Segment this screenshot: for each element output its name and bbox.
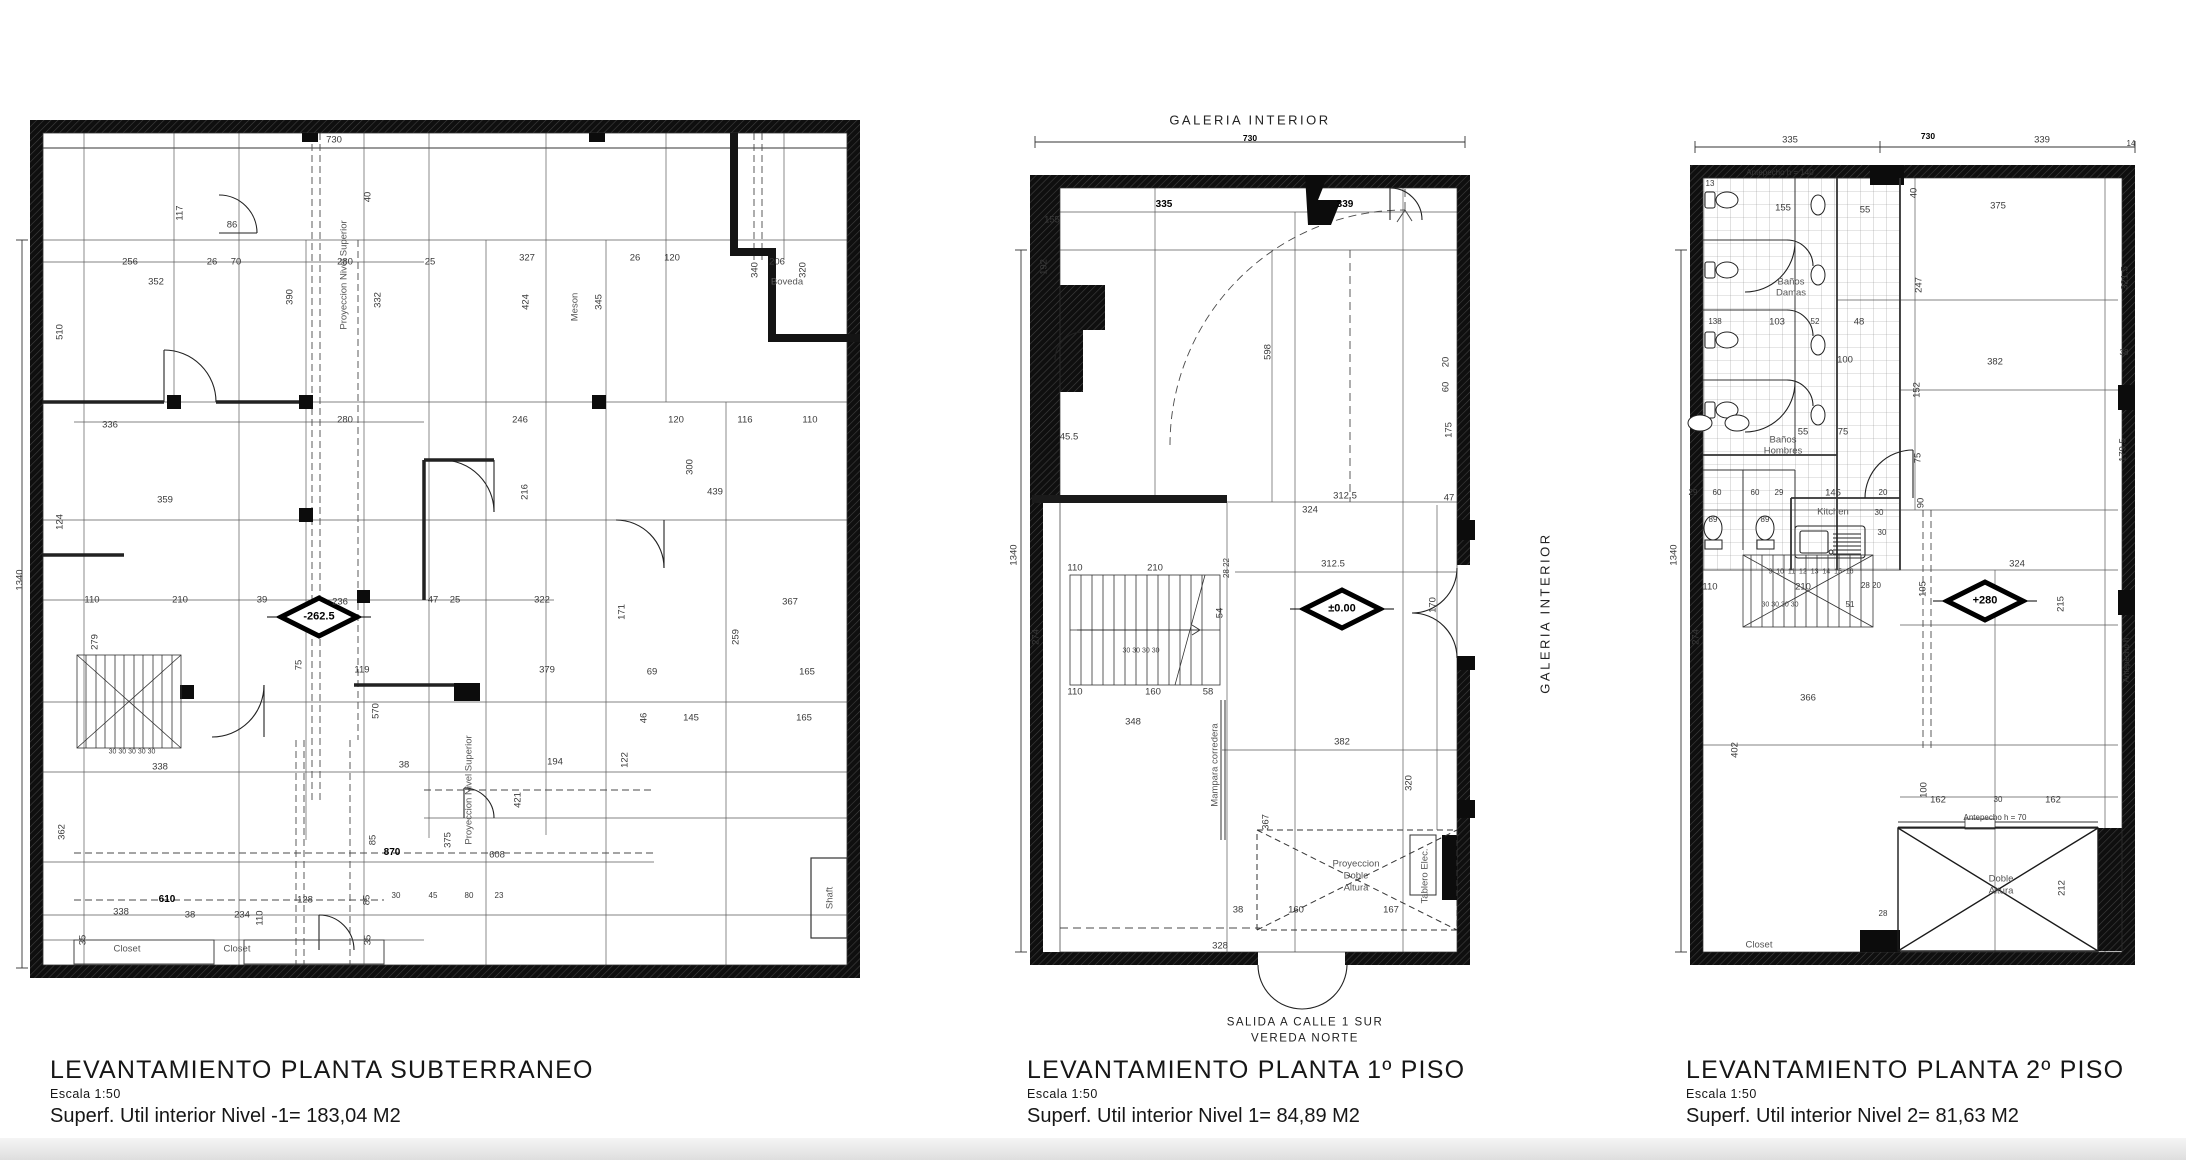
dim-label: 128: [297, 895, 313, 905]
dim-label: 246: [512, 415, 528, 425]
dim-label: 145: [1825, 488, 1841, 498]
dim-label: 324: [1302, 505, 1318, 515]
dim-label: 30 30 30 30: [1123, 648, 1160, 655]
dim-label: 26: [630, 253, 641, 263]
plan-subterraneo-labels: 73013401178625626702802532726120206352Bo…: [14, 100, 874, 1000]
dim-label: 256: [122, 257, 138, 267]
dim-label: 279: [90, 634, 100, 650]
dim-label: 60: [1441, 382, 1451, 393]
dim-label: 171: [617, 604, 627, 620]
room-label: Hombres: [1764, 446, 1803, 456]
dim-label: 28 20: [1861, 582, 1881, 590]
room-label: Mampara corredera: [1210, 723, 1220, 806]
dim-label: 439: [707, 487, 723, 497]
dim-label: 570: [371, 703, 381, 719]
dim-label: 120: [668, 415, 684, 425]
plan-scale-subterraneo: Escala 1:50: [50, 1087, 594, 1101]
dim-label: 322: [534, 595, 550, 605]
dim-label: 25: [450, 595, 461, 605]
dim-label: 274: [1031, 629, 1041, 645]
dim-label: 46: [639, 713, 649, 724]
dim-label: 335: [1156, 200, 1173, 210]
room-label: Closet: [224, 944, 251, 954]
dim-label: 236: [332, 597, 348, 607]
dim-label: SALIDA A CALLE 1 SUR: [1227, 1017, 1384, 1029]
level-marker-label: -262.5: [303, 612, 334, 623]
dim-label: 110: [255, 910, 265, 925]
dim-label: GALERIA INTERIOR: [1169, 114, 1330, 127]
dim-label: 52: [1811, 318, 1820, 326]
dim-label: 212: [2057, 880, 2067, 896]
dim-label: 320: [798, 262, 808, 278]
dim-label: 730: [326, 135, 342, 145]
dim-label: 20: [1441, 357, 1451, 368]
dim-label: Antepecho h = 70: [1964, 814, 2027, 822]
dim-label: 51: [1846, 601, 1855, 609]
dim-label: 336: [102, 420, 118, 430]
dim-label: 1340: [1669, 544, 1679, 565]
dim-label: 100: [1919, 782, 1929, 798]
dim-label: 300: [685, 459, 695, 475]
dim-label: 69: [647, 667, 658, 677]
dim-label: 382: [1987, 357, 2003, 367]
dim-label: 110: [1067, 563, 1082, 573]
dim-label: 421: [513, 792, 523, 808]
dim-label: 179.5: [2118, 438, 2128, 462]
dim-label: 25: [425, 257, 436, 267]
dim-label: 38: [399, 760, 410, 770]
dim-label: 155: [1775, 203, 1791, 213]
dim-label: 30: [1878, 529, 1887, 537]
dim-label: 45: [429, 892, 438, 900]
dim-label: 110: [1702, 582, 1717, 592]
dim-label: 345: [594, 294, 604, 310]
dim-label: 124: [55, 514, 65, 530]
dim-label: 152: [1912, 382, 1922, 398]
room-label: Closet: [114, 944, 141, 954]
dim-label: 247: [1914, 277, 1924, 293]
dim-label: 1340: [15, 569, 25, 590]
dim-label: 402: [1730, 742, 1740, 758]
dim-label: 348: [1125, 717, 1141, 727]
dim-label: 75: [1838, 427, 1849, 437]
dim-label: 30: [1994, 796, 2003, 804]
dim-label: 320: [1404, 775, 1414, 791]
plan-scale-segundo-piso: Escala 1:50: [1686, 1087, 2124, 1101]
dim-label: 321.5: [2120, 266, 2130, 290]
dim-label: 58: [1203, 687, 1214, 697]
plan-area-subterraneo: Superf. Util interior Nivel -1= 183,04 M…: [50, 1105, 594, 1128]
dim-label: 379: [539, 665, 555, 675]
dim-label: 145: [683, 713, 699, 723]
plan-title-primer-piso: LEVANTAMIENTO PLANTA 1º PISO: [1027, 1056, 1465, 1085]
dim-label: 175: [1444, 422, 1454, 438]
dim-label: 110: [1067, 687, 1082, 697]
dim-label: 312.5: [1321, 559, 1345, 569]
drawing-sheet: 73013401178625626702802532726120206352Bo…: [0, 0, 2186, 1160]
plan-area-primer-piso: Superf. Util interior Nivel 1= 84,89 M2: [1027, 1105, 1465, 1128]
dim-label: 338: [113, 907, 129, 917]
dim-label: 75: [294, 660, 304, 671]
room-label: Proyeccion Nivel Superior: [339, 220, 349, 329]
dim-label: 274: [1691, 629, 1701, 645]
dim-label: 45.5: [1060, 432, 1079, 442]
room-label: Doble: [1344, 871, 1369, 881]
dim-label: 110: [802, 415, 817, 425]
dim-label: 730: [1243, 134, 1257, 143]
dim-label: 598: [1263, 344, 1273, 360]
dim-label: 335: [1782, 135, 1798, 145]
dim-label: 30: [392, 892, 401, 900]
dim-label: 215: [2056, 596, 2066, 612]
dim-label: 70: [231, 257, 242, 267]
level-marker-label: +280: [1973, 596, 1998, 607]
dim-label: 117: [175, 205, 185, 220]
dim-label: 328: [1212, 941, 1228, 951]
dim-label: 608: [489, 850, 505, 860]
plan-segundo-piso: 33573033914Antepecho h = 140131555540375…: [1665, 100, 2185, 1060]
dim-label: 375: [443, 832, 453, 848]
dim-label: 510: [55, 324, 65, 340]
dim-label: 90: [1916, 498, 1926, 509]
dim-label: 110: [84, 595, 99, 605]
dim-label: 359: [157, 495, 173, 505]
dim-label: 28: [1879, 910, 1888, 918]
dim-label: 210: [1795, 582, 1811, 592]
dim-label: 35: [78, 935, 88, 946]
dim-label: 20: [1879, 489, 1888, 497]
dim-label: 327: [519, 253, 535, 263]
dim-label: 375: [1990, 201, 2006, 211]
dim-label: 55: [1798, 427, 1809, 437]
dim-label: 194: [547, 757, 563, 767]
plan-area-segundo-piso: Superf. Util interior Nivel 2= 81,63 M2: [1686, 1105, 2124, 1128]
dim-label: 332: [373, 292, 383, 308]
dim-label: 160: [1145, 687, 1161, 697]
dim-label: 424: [521, 294, 531, 310]
plan-primer-piso-labels: GALERIA INTERIOR730335339155192598206017…: [1005, 100, 1580, 1060]
dim-label: 155: [1044, 215, 1060, 225]
dim-label: 339: [2034, 135, 2050, 145]
dim-label: 210: [1147, 563, 1163, 573]
dim-label: 339: [1337, 200, 1354, 210]
dim-label: 167: [1383, 905, 1399, 915]
dim-label: 40: [363, 192, 373, 203]
dim-label: 9 10 11 12 13 14 15 16: [1768, 569, 1853, 576]
plan-title-subterraneo: LEVANTAMIENTO PLANTA SUBTERRANEO: [50, 1056, 594, 1085]
room-label: Proyeccion: [1333, 859, 1380, 869]
dim-label: 210: [172, 595, 188, 605]
dim-label: 60: [1713, 489, 1722, 497]
dim-label: 216: [520, 484, 530, 500]
dim-label: 38: [185, 910, 196, 920]
dim-label: 312.5: [1333, 491, 1357, 501]
dim-label: GALERIA INTERIOR: [1539, 532, 1552, 693]
dim-label: 47: [428, 595, 439, 605]
room-label: Damas: [1776, 288, 1806, 298]
dim-label: 170: [1428, 597, 1438, 613]
dim-label: 55: [1860, 205, 1871, 215]
dim-label: 362: [57, 824, 67, 840]
room-label: Proyeccion Nivel Superior: [464, 735, 474, 844]
dim-label: 340: [750, 262, 760, 278]
plan-primer-piso: GALERIA INTERIOR730335339155192598206017…: [1005, 100, 1580, 1060]
plan-subterraneo: 73013401178625626702802532726120206352Bo…: [14, 100, 874, 1000]
dim-label: Antepecho h = 140: [1746, 169, 1813, 177]
room-label: Tablero Elec.: [1420, 849, 1430, 904]
room-label: Closet: [1746, 940, 1773, 950]
dim-label: 367: [1261, 814, 1271, 830]
dim-label: 100: [1837, 355, 1853, 365]
room-label: Altura: [1344, 883, 1369, 893]
dim-label: 234: [234, 910, 250, 920]
dim-label: 610: [159, 895, 176, 905]
dim-label: 280: [337, 415, 353, 425]
dim-label: 160: [1288, 905, 1304, 915]
dim-label: 382: [1334, 737, 1350, 747]
dim-label: 367: [782, 597, 798, 607]
room-label: Altura: [1989, 886, 2014, 896]
dim-label: 162: [1930, 795, 1946, 805]
dim-label: 14: [2127, 140, 2136, 148]
room-label: Shaft: [825, 887, 835, 909]
dim-label: 119: [354, 665, 369, 675]
dim-label: 89: [1761, 516, 1770, 524]
dim-label: 26: [207, 257, 218, 267]
dim-label: 30: [1875, 509, 1884, 517]
dim-label: 29: [1689, 489, 1698, 497]
dim-label: 352: [148, 277, 164, 287]
dim-label: 138: [1708, 318, 1721, 326]
dim-label: 390: [285, 289, 295, 305]
dim-label: 80: [465, 892, 474, 900]
dim-label: 30 30 30 30 30: [109, 749, 156, 756]
dim-label: 338: [152, 762, 168, 772]
dim-label: VEREDA NORTE: [1251, 1033, 1359, 1045]
title-block-segundo-piso: LEVANTAMIENTO PLANTA 2º PISO Escala 1:50…: [1686, 1056, 2124, 1128]
dim-label: 38: [2120, 349, 2129, 357]
dim-label: 54: [1215, 608, 1225, 619]
dim-label: 39: [257, 595, 268, 605]
dim-label: 206: [769, 257, 785, 267]
dim-label: Antepecho h: [2123, 638, 2131, 683]
dim-label: 28 22: [1223, 558, 1231, 578]
title-block-primer-piso: LEVANTAMIENTO PLANTA 1º PISO Escala 1:50…: [1027, 1056, 1465, 1128]
dim-label: 259: [731, 629, 741, 645]
dim-label: 48: [1854, 317, 1865, 327]
dim-label: 86: [227, 220, 238, 230]
dim-label: 192: [1039, 259, 1049, 275]
dim-label: 1340: [1009, 544, 1019, 565]
dim-label: 165: [799, 667, 815, 677]
dim-label: 870: [384, 848, 401, 858]
plan-title-segundo-piso: LEVANTAMIENTO PLANTA 2º PISO: [1686, 1056, 2124, 1085]
title-block-subterraneo: LEVANTAMIENTO PLANTA SUBTERRANEO Escala …: [50, 1056, 594, 1128]
dim-label: 30 30 30 30: [1762, 602, 1799, 609]
dim-label: 116: [737, 415, 752, 425]
dim-label: 165: [796, 713, 812, 723]
dim-label: 23: [495, 892, 504, 900]
dim-label: 366: [1800, 693, 1816, 703]
dim-label: 730: [1921, 132, 1935, 141]
dim-label: 162: [2045, 795, 2061, 805]
dim-label: 122: [620, 752, 630, 768]
dim-label: 75: [1913, 453, 1923, 464]
room-label: Meson: [570, 293, 580, 322]
dim-label: 105: [1918, 581, 1928, 597]
sheet-bottom-edge: [0, 1138, 2186, 1160]
dim-label: 60: [1751, 489, 1760, 497]
dim-label: 85: [362, 895, 372, 906]
dim-label: 29: [1775, 489, 1784, 497]
dim-label: 120: [664, 253, 680, 263]
room-label: Baños: [1778, 277, 1805, 287]
dim-label: 85: [368, 835, 378, 846]
plan-segundo-piso-labels: 33573033914Antepecho h = 140131555540375…: [1665, 100, 2185, 1060]
dim-label: 103: [1769, 317, 1785, 327]
dim-label: 13: [1706, 180, 1715, 188]
dim-label: 47: [1444, 493, 1455, 503]
dim-label: 35: [363, 935, 373, 946]
dim-label: 89: [1709, 516, 1718, 524]
dim-label: 40: [1909, 188, 1919, 199]
room-label: Kitchen: [1817, 507, 1849, 517]
room-label: Doble: [1989, 874, 2014, 884]
room-label: Boveda: [771, 277, 803, 287]
dim-label: 38: [1233, 905, 1244, 915]
level-marker-label: ±0.00: [1328, 604, 1355, 615]
dim-label: 324: [2009, 559, 2025, 569]
room-label: Baños: [1770, 435, 1797, 445]
plan-scale-primer-piso: Escala 1:50: [1027, 1087, 1465, 1101]
